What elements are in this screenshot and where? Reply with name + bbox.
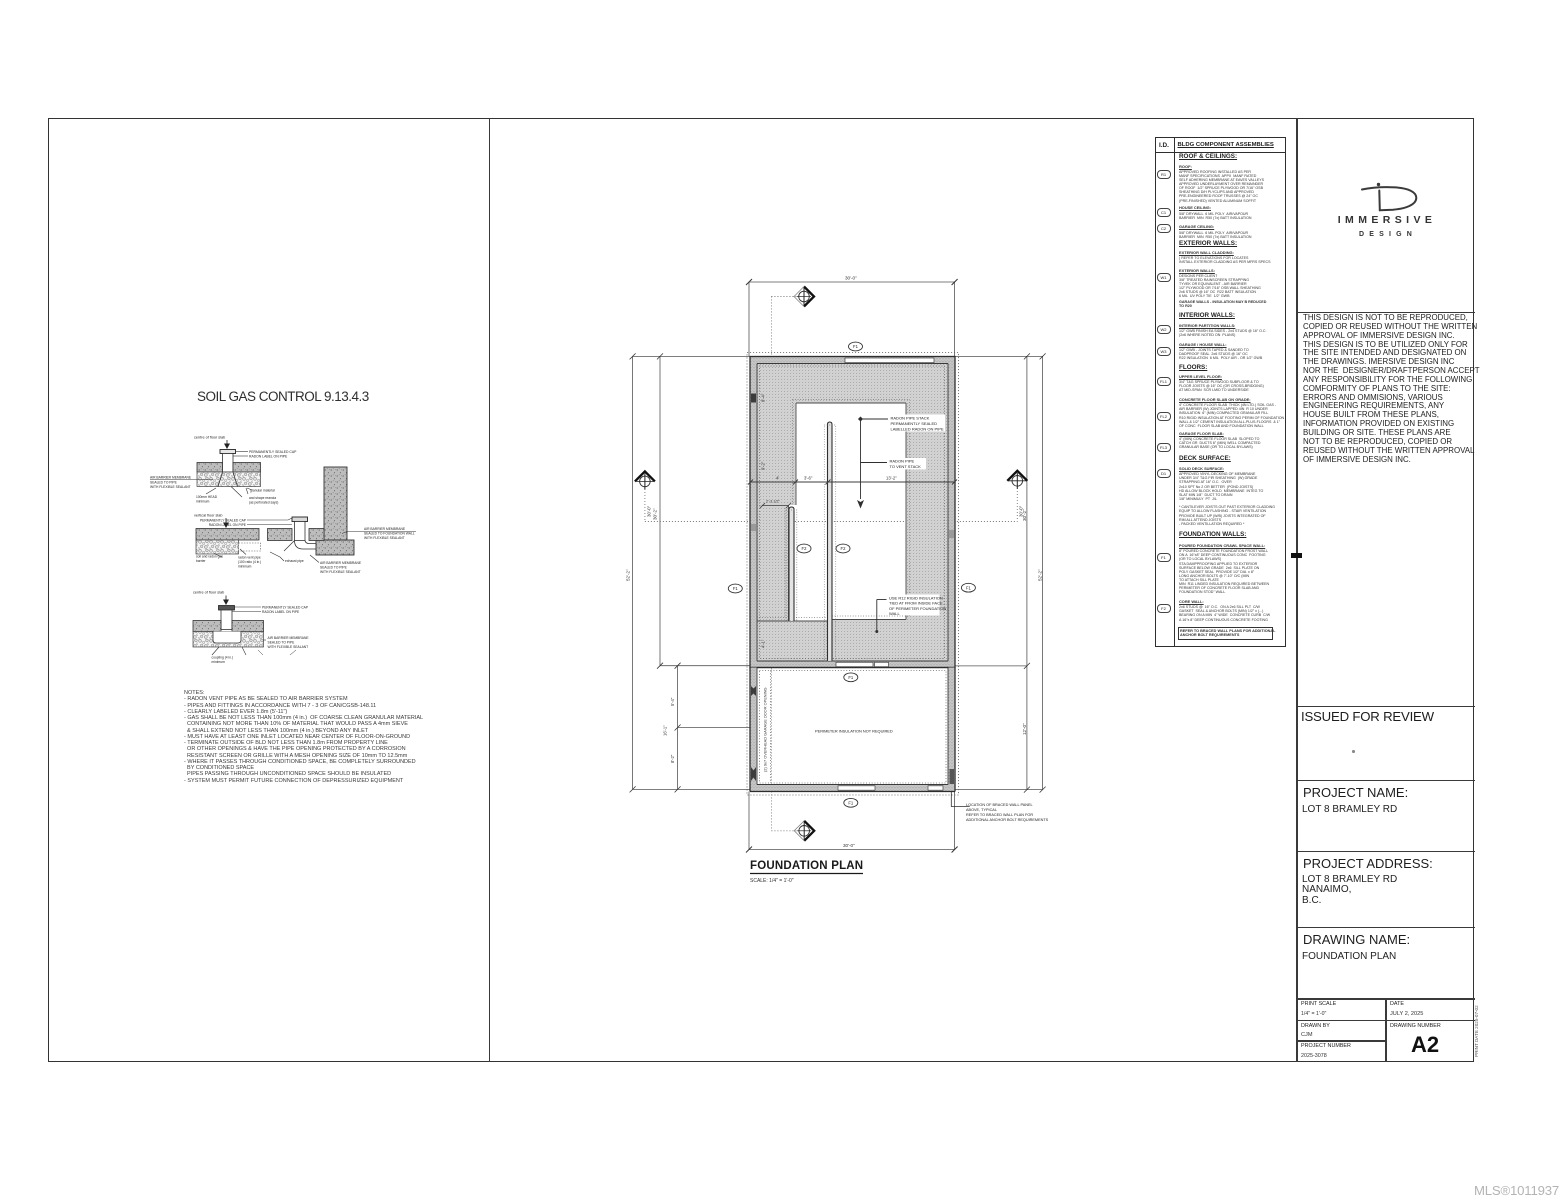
svg-text:F1: F1 (848, 801, 854, 806)
svg-text:soil and radon gas: soil and radon gas (196, 555, 223, 559)
svg-text:TO VENT STACK: TO VENT STACK (890, 464, 922, 469)
svg-text:2'-3 1/2": 2'-3 1/2" (766, 500, 781, 504)
svg-text:exhaust pipe: exhaust pipe (285, 559, 304, 563)
svg-text:LOCATION OF BRACED WALL PANEL: LOCATION OF BRACED WALL PANEL (966, 803, 1033, 807)
svg-text:RADON PIPE STACK: RADON PIPE STACK (891, 416, 930, 421)
svg-text:F1: F1 (848, 675, 854, 680)
svg-text:30'-0": 30'-0" (647, 505, 652, 517)
svg-text:WALL: WALL (889, 611, 901, 616)
svg-text:(2) 9x7 OVERHEAD GARAGE DOOR O: (2) 9x7 OVERHEAD GARAGE DOOR OPENING (763, 687, 768, 772)
svg-text:8'-2": 8'-2" (670, 754, 675, 763)
svg-text:30'-0": 30'-0" (843, 843, 855, 848)
svg-text:30'-2": 30'-2" (653, 508, 658, 520)
svg-text:52'-2": 52'-2" (626, 569, 631, 581)
svg-text:30'-0": 30'-0" (1019, 505, 1024, 517)
svg-text:F1: F1 (853, 344, 859, 349)
svg-text:IMMERSIVE: IMMERSIVE (1338, 214, 1437, 226)
svg-text:SEALED TO FOUNDATION WALL: SEALED TO FOUNDATION WALL (364, 532, 415, 536)
svg-text:LABELLED RADON ON PIPE: LABELLED RADON ON PIPE (891, 427, 944, 432)
svg-text:(as perforated says): (as perforated says) (249, 501, 278, 505)
svg-text:WITH FLEXIBLE SEALANT: WITH FLEXIBLE SEALANT (268, 645, 309, 649)
svg-text:12'-0": 12'-0" (1022, 723, 1027, 735)
svg-text:30'-0": 30'-0" (845, 276, 857, 281)
svg-text:ABOVE, TYPICAL: ABOVE, TYPICAL (966, 808, 997, 812)
svg-text:SCALE: 1/4" = 1'-0": SCALE: 1/4" = 1'-0" (750, 878, 794, 884)
svg-text:4': 4' (776, 476, 779, 481)
svg-text:4'-1": 4'-1" (761, 639, 766, 648)
svg-text:AIR BARRIER MEMBRANE: AIR BARRIER MEMBRANE (320, 561, 362, 565)
svg-text:barrier: barrier (196, 559, 206, 563)
svg-text:RADON LABEL ON PIPE: RADON LABEL ON PIPE (262, 610, 300, 614)
svg-text:centre of floor slab: centre of floor slab (194, 436, 225, 440)
svg-text:AIR BARRIER MEMBRANE: AIR BARRIER MEMBRANE (268, 636, 310, 640)
svg-text:SEALED TO PIPE: SEALED TO PIPE (320, 566, 348, 570)
svg-text:FOUNDATION PLAN: FOUNDATION PLAN (750, 860, 863, 872)
svg-text:minimum: minimum (196, 500, 210, 504)
svg-text:PERIMETER INSULATION NOT RE: PERIMETER INSULATION NOT REQUIRED (815, 729, 893, 734)
svg-text:granular material: granular material (250, 489, 275, 493)
svg-text:DESIGN: DESIGN (1359, 231, 1417, 238)
svg-text:F2: F2 (802, 546, 808, 551)
svg-text:RADON LABEL ON PIPE: RADON LABEL ON PIPE (249, 455, 288, 459)
svg-text:52'-2": 52'-2" (1038, 569, 1043, 581)
svg-text:RADON LABEL ON PIPE: RADON LABEL ON PIPE (209, 523, 247, 527)
svg-text:16'-1": 16'-1" (663, 725, 668, 736)
svg-text:PERMANENTLY SEALED CAP: PERMANENTLY SEALED CAP (200, 518, 247, 522)
svg-text:8'-4": 8'-4" (761, 393, 766, 402)
svg-text:coupling (4 in.): coupling (4 in.) (212, 656, 234, 660)
svg-text:5'-4": 5'-4" (670, 697, 675, 706)
svg-text:PERMANENTLY SEALED CAP: PERMANENTLY SEALED CAP (249, 450, 297, 454)
svg-text:RADON PIPE: RADON PIPE (890, 459, 915, 464)
svg-text:AIR BARRIER MEMBRANE: AIR BARRIER MEMBRANE (150, 475, 192, 479)
svg-text:3'-6": 3'-6" (804, 476, 813, 481)
svg-text:13'-2": 13'-2" (886, 476, 897, 481)
svg-text:radon vent pipe: radon vent pipe (238, 556, 261, 560)
svg-text:F1: F1 (966, 585, 972, 590)
svg-text:minimum: minimum (212, 660, 226, 664)
svg-text:SEALED TO PIPE: SEALED TO PIPE (150, 481, 178, 485)
svg-text:(100 ratio (4 in.): (100 ratio (4 in.) (238, 560, 261, 564)
svg-text:WITH FLEXIBLE SEALANT: WITH FLEXIBLE SEALANT (320, 570, 361, 574)
svg-text:REFER TO BRACED WALL PLAN FOR: REFER TO BRACED WALL PLAN FOR (966, 813, 1033, 817)
svg-text:AIR BARRIER MEMBRANE: AIR BARRIER MEMBRANE (364, 527, 406, 531)
svg-text:WITH FLEXIBLE SEALANT: WITH FLEXIBLE SEALANT (150, 485, 191, 489)
svg-text:and shape reancia: and shape reancia (249, 496, 276, 500)
svg-text:vertical floor slab: vertical floor slab (194, 514, 223, 518)
svg-text:9'-2": 9'-2" (761, 461, 766, 470)
svg-text:minimum: minimum (238, 565, 252, 569)
svg-text:PERMANENTLY SEALED CAP: PERMANENTLY SEALED CAP (262, 606, 309, 610)
svg-text:PERMANENTLY SEALED: PERMANENTLY SEALED (891, 421, 938, 426)
svg-text:F1: F1 (733, 586, 739, 591)
svg-text:WITH FLEXIBLE SEALANT: WITH FLEXIBLE SEALANT (364, 536, 405, 540)
svg-text:centre of floor slab: centre of floor slab (193, 591, 224, 595)
svg-text:F2: F2 (841, 546, 847, 551)
svg-text:SEALED TO PIPE: SEALED TO PIPE (268, 640, 296, 644)
svg-text:100mm HEAD: 100mm HEAD (196, 495, 218, 499)
svg-text:ADDITIONAL ANCHOR BOLT REQUIRE: ADDITIONAL ANCHOR BOLT REQUIREMENTS (966, 818, 1049, 822)
